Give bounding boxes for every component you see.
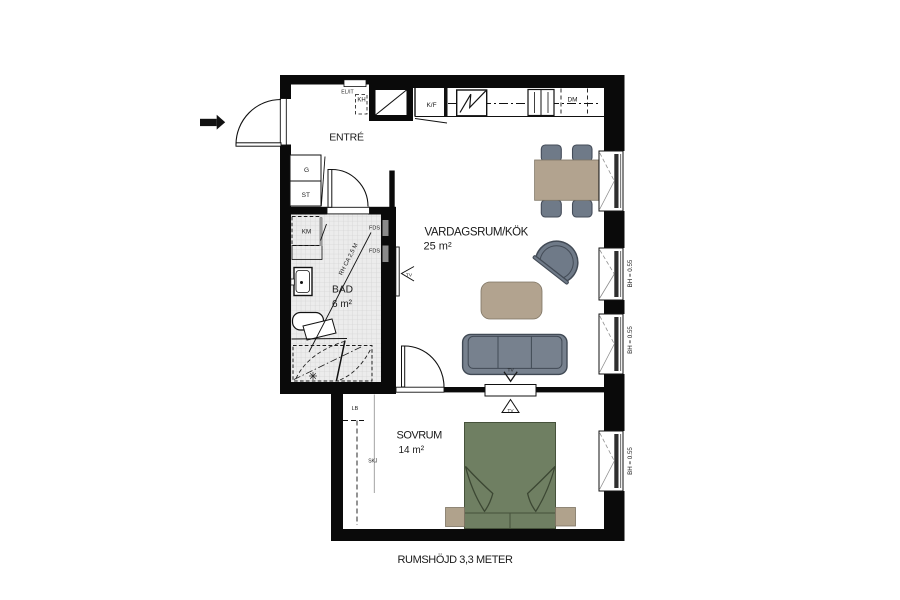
svg-text:14 m²: 14 m² (399, 445, 425, 456)
svg-text:FDS: FDS (369, 226, 380, 232)
svg-text:TV: TV (508, 368, 515, 374)
svg-text:TV: TV (507, 408, 514, 414)
svg-text:KM: KM (302, 229, 311, 236)
svg-text:6 m²: 6 m² (332, 299, 353, 310)
svg-text:K/F: K/F (426, 102, 436, 109)
svg-text:BAD: BAD (332, 285, 353, 296)
svg-text:25 m²: 25 m² (424, 241, 452, 253)
svg-text:BH = 0.55: BH = 0.55 (627, 259, 634, 287)
svg-text:KH: KH (357, 98, 365, 104)
svg-text:BH = 0.55: BH = 0.55 (627, 447, 634, 475)
svg-text:TV: TV (406, 273, 413, 279)
svg-text:EL/IT: EL/IT (341, 90, 354, 96)
svg-text:SOVRUM: SOVRUM (397, 430, 443, 442)
svg-text:DM: DM (567, 97, 577, 104)
svg-text:LB: LB (352, 406, 359, 412)
svg-text:FDS: FDS (369, 249, 380, 255)
svg-text:BH = 0.55: BH = 0.55 (627, 326, 634, 354)
svg-text:ENTRÉ: ENTRÉ (329, 131, 364, 144)
svg-text:G: G (304, 167, 309, 174)
svg-text:ST: ST (302, 192, 310, 199)
svg-text:SKJ: SKJ (368, 459, 378, 465)
svg-text:RUMSHÖJD 3,3 METER: RUMSHÖJD 3,3 METER (398, 554, 513, 566)
svg-text:VARDAGSRUM/KÖK: VARDAGSRUM/KÖK (425, 227, 529, 239)
